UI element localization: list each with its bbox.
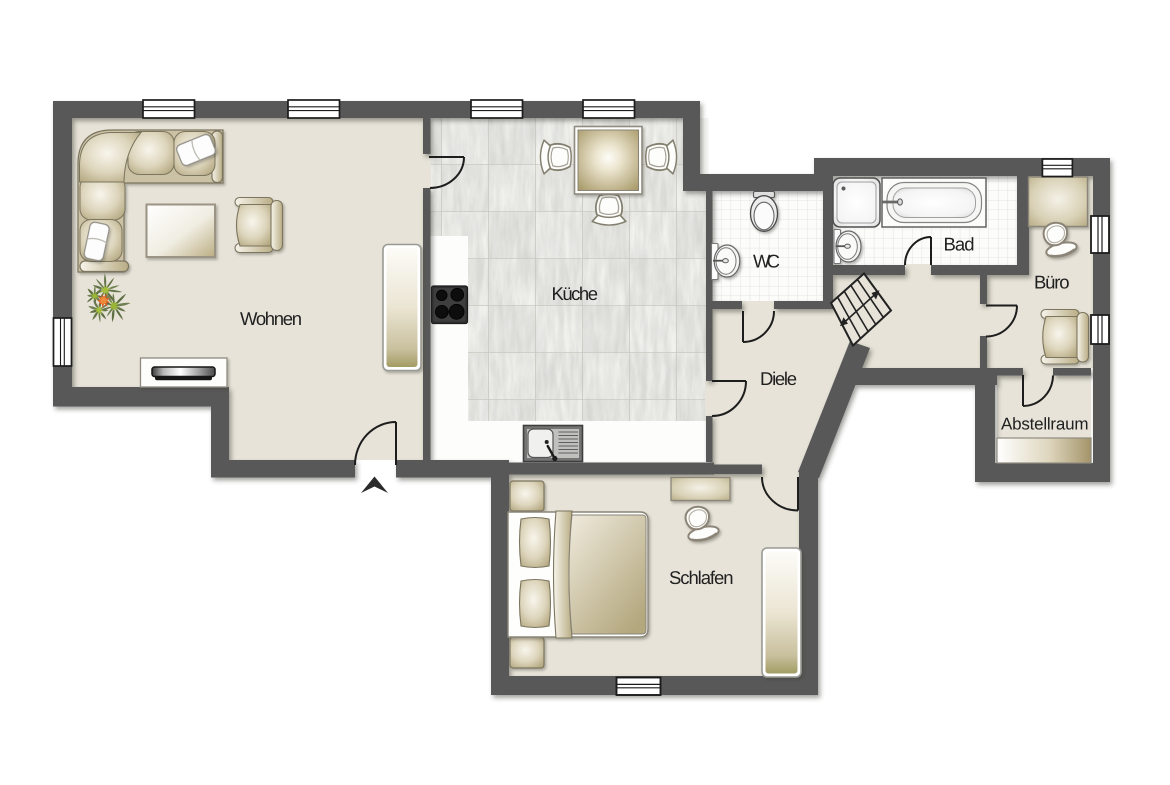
svg-text:Wohnen: Wohnen [240,308,302,329]
svg-text:Küche: Küche [552,283,599,304]
svg-text:WC: WC [753,251,780,272]
svg-text:Bad: Bad [944,234,975,255]
svg-text:Büro: Büro [1034,272,1070,293]
svg-text:Abstellraum: Abstellraum [1001,415,1089,434]
svg-text:Diele: Diele [760,368,797,389]
svg-text:Schlafen: Schlafen [669,567,734,588]
